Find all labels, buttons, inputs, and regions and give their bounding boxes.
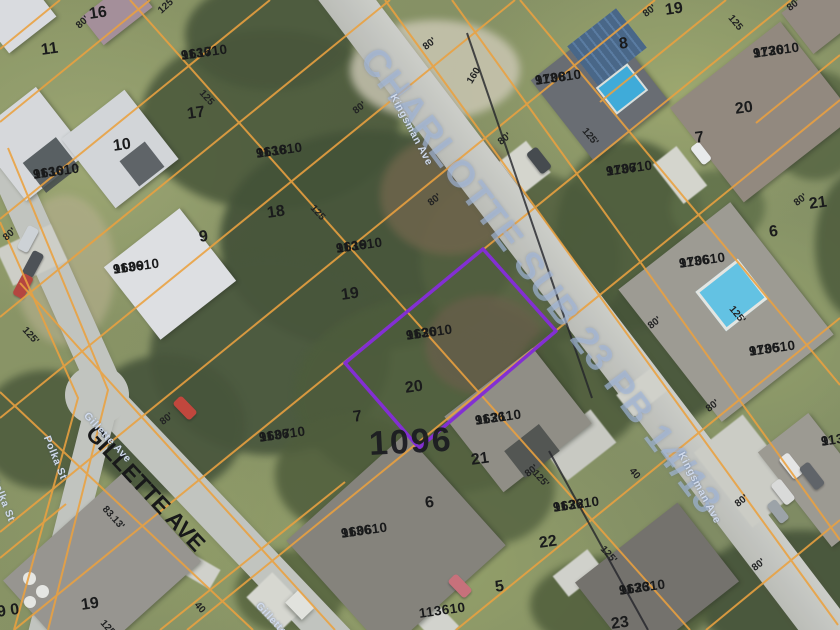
dimension-label: 80' [646, 315, 663, 332]
dimension-label: 125 [197, 88, 216, 108]
dimension-label: 80' [421, 36, 438, 53]
dimension-label: 80' [496, 131, 513, 148]
dimension-label: 125' [598, 544, 619, 566]
dimension-label: 80' [426, 192, 443, 209]
dimension-label: 125 [308, 203, 327, 223]
dimension-label: 125' [98, 618, 119, 630]
dimension-label: 125' [727, 304, 748, 326]
dimension-label: 125' [20, 325, 41, 347]
dimension-label: 125' [156, 0, 178, 16]
dimension-label: 80' [1, 226, 18, 243]
dimension-label: 80' [158, 411, 175, 428]
dimension-label: 80' [750, 557, 767, 574]
dimension-label: 80' [785, 0, 802, 14]
dimension-label: 80' [704, 398, 721, 415]
dimension-label: 80' [733, 493, 750, 510]
dimension-label: 40 [627, 466, 643, 482]
dimension-label: 125' [530, 468, 551, 490]
dimension-label: 83.13' [100, 504, 127, 532]
dimension-label: 40 [192, 600, 208, 616]
dimension-label: 80' [641, 3, 658, 20]
dimension-label: 80' [351, 100, 368, 117]
dimensions-layer: 125'80'80'125'12512580'16080'80'80'125'8… [0, 0, 840, 630]
aerial-parcel-map[interactable]: CHARLOTTE SUB 23 PB 14/13 1096 GILLETTE … [0, 0, 840, 630]
dimension-label: 125' [580, 126, 601, 148]
dimension-label: 80' [74, 14, 91, 31]
dimension-label: 125 [726, 13, 745, 33]
dimension-label: 80' [792, 192, 809, 209]
dimension-label: 160 [465, 66, 483, 86]
